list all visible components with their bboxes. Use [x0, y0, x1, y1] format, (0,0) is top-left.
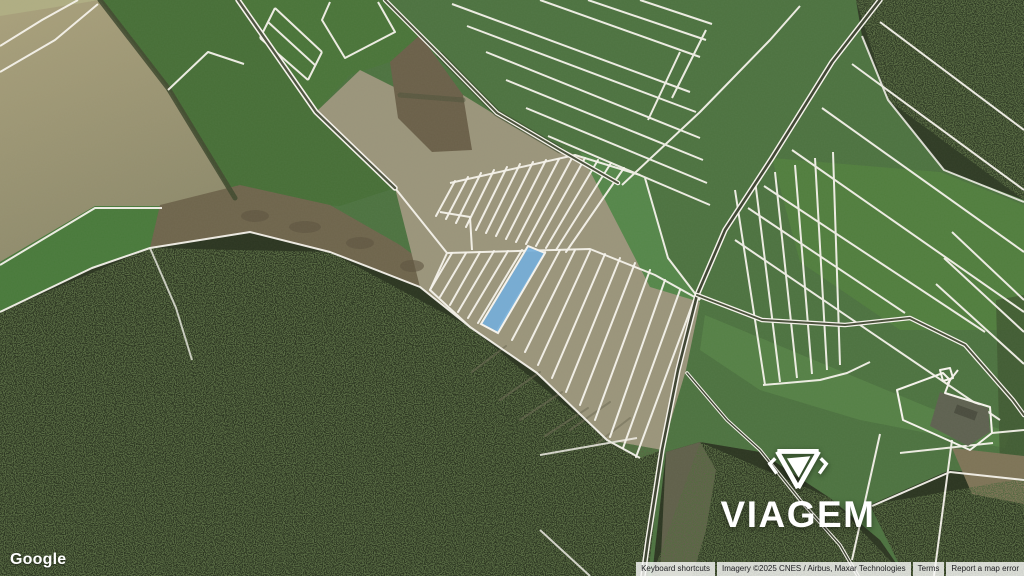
satellite-map[interactable] [0, 0, 1024, 576]
keyboard-shortcuts-button[interactable]: Keyboard shortcuts [636, 562, 715, 576]
imagery-credit: Imagery ©2025 CNES / Airbus, Maxar Techn… [717, 562, 911, 576]
map-viewport[interactable]: VIAGEM Google Keyboard shortcuts Imagery… [0, 0, 1024, 576]
terms-link[interactable]: Terms [913, 562, 945, 576]
google-logo[interactable]: Google [10, 551, 66, 569]
grain-overlay [0, 0, 1024, 576]
attribution-bar: Keyboard shortcuts Imagery ©2025 CNES / … [636, 562, 1024, 576]
report-error-link[interactable]: Report a map error [946, 562, 1024, 576]
